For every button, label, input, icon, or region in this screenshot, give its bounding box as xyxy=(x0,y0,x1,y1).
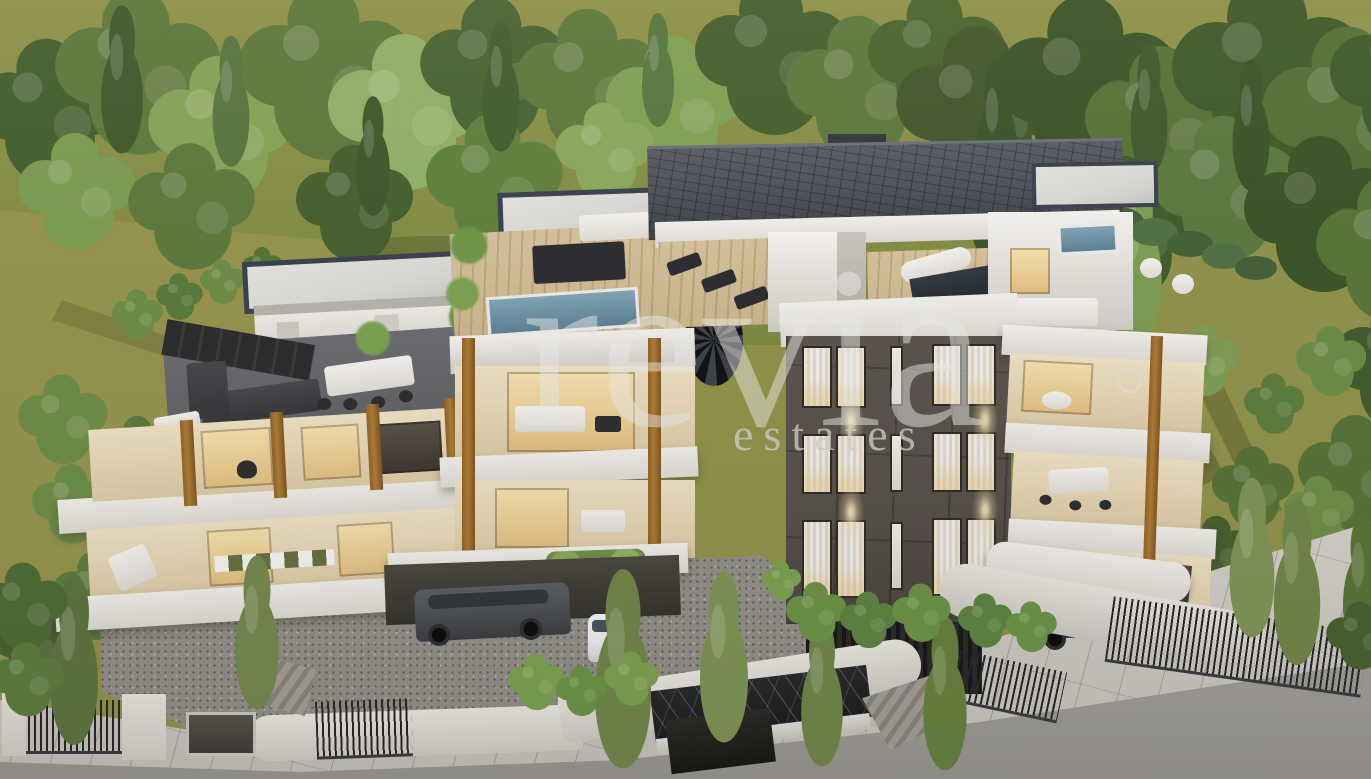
dining-chair xyxy=(1069,500,1082,511)
tower-slit-window xyxy=(892,436,901,490)
warm-window xyxy=(200,427,273,489)
fence-post xyxy=(122,694,166,760)
warm-window xyxy=(300,423,361,480)
tower-slit-window xyxy=(892,348,901,404)
wall-sconce-light xyxy=(972,482,998,538)
tower-window xyxy=(934,434,960,490)
windshield xyxy=(592,620,614,632)
entry-gate xyxy=(186,712,256,756)
dining-table xyxy=(1048,467,1109,494)
tower-window xyxy=(934,346,960,404)
tower-window xyxy=(804,348,830,406)
sun-lounger xyxy=(733,285,770,310)
metal-slat-fence xyxy=(22,700,122,754)
car-windows xyxy=(428,589,549,609)
terrace-plant xyxy=(441,273,483,315)
wood-pillar xyxy=(462,338,475,558)
tower-slit-window xyxy=(892,524,901,588)
car-wheel xyxy=(520,618,542,640)
hanging-chair xyxy=(1116,367,1143,394)
outdoor-seating xyxy=(532,241,626,284)
patio-chair xyxy=(581,510,625,532)
wall-sconce-light xyxy=(838,394,864,450)
wall-sconce-light xyxy=(972,392,998,448)
car-wheel xyxy=(428,624,450,646)
architectural-render-scene: revia estates xyxy=(0,0,1371,779)
wicker-chair xyxy=(1140,258,1162,278)
wall-sconce-light xyxy=(838,484,864,540)
dining-chair xyxy=(343,398,358,411)
terrace-plant xyxy=(349,317,396,360)
rooftop-deck-left xyxy=(659,238,774,328)
warm-window xyxy=(495,488,569,548)
warm-window xyxy=(1010,248,1050,294)
parked-car-white xyxy=(588,614,618,662)
dining-chair xyxy=(317,398,332,411)
dining-chair xyxy=(399,390,414,403)
dark-window xyxy=(374,420,443,474)
white-outdoor-sofa xyxy=(1012,298,1098,326)
sun-lounger xyxy=(666,252,703,277)
coffee-table xyxy=(595,416,621,432)
tower-window xyxy=(804,522,830,596)
dining-chair xyxy=(1039,494,1052,505)
metal-slat-fence xyxy=(315,698,413,759)
lounge-chair xyxy=(107,543,158,592)
dining-chair xyxy=(1099,500,1112,511)
terrace-table xyxy=(579,212,652,242)
rooftop-jacuzzi xyxy=(1057,222,1118,255)
fence-post xyxy=(2,688,26,756)
interior-sofa xyxy=(515,406,585,432)
sun-lounger xyxy=(701,269,738,294)
armchair xyxy=(236,460,257,479)
right-flat-roof xyxy=(1032,161,1159,209)
tower-window xyxy=(804,436,830,492)
terrace-plant xyxy=(445,222,493,268)
wood-pillar xyxy=(648,338,661,558)
wicker-chair xyxy=(1172,274,1194,294)
